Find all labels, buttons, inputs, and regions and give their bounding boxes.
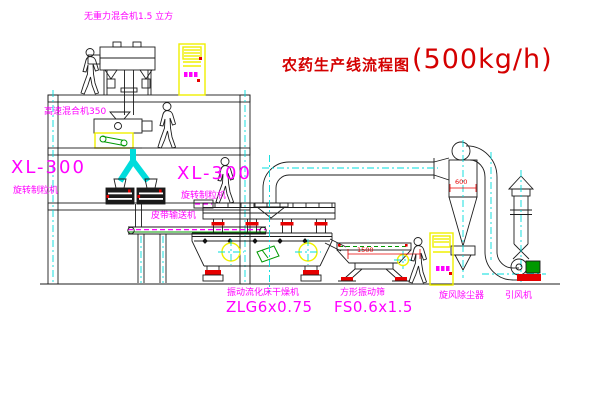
person-second-floor	[158, 103, 176, 149]
diagram-title: 农药生产线流程图 (500kg/h)	[282, 44, 553, 75]
label-gravity-mixer: 无重力混合机1.5 立方	[84, 13, 173, 22]
fluid-bed-dryer-machine	[192, 203, 346, 281]
control-cabinet-upper	[179, 44, 205, 95]
label-granulator-left-model: XL-300	[11, 159, 86, 177]
rotary-granulator-right	[137, 179, 165, 204]
process-flow-diagram: 600	[0, 0, 600, 403]
y-chute	[120, 149, 148, 181]
cyclone-diameter-dim: 600	[455, 178, 467, 186]
title-capacity: (500kg/h)	[412, 44, 553, 75]
sieve-length-dim: 1500	[357, 246, 374, 254]
granulator-discharge-pipe	[136, 204, 142, 227]
label-high-speed-mixer: 高速混合机350	[44, 108, 106, 117]
title-chinese: 农药生产线流程图	[282, 54, 410, 75]
label-granulator-right-model: XL-300	[177, 165, 252, 183]
label-belt-conveyor: 皮带输送机	[151, 212, 196, 221]
high-speed-mixer-machine	[94, 112, 152, 148]
label-granulator-left-name: 旋转制粒机	[13, 187, 58, 196]
control-cabinet-lower	[430, 233, 453, 285]
label-cyclone: 旋风除尘器	[439, 292, 484, 301]
label-sieve-model: FS0.6x1.5	[334, 300, 413, 315]
label-dryer-model: ZLG6x0.75	[226, 300, 313, 315]
label-granulator-right-name: 旋转制粒机	[181, 192, 226, 201]
induced-draft-fan-machine	[511, 259, 541, 281]
person-ground	[409, 238, 427, 284]
fan-suction-duct	[466, 146, 546, 280]
label-dryer-name: 振动流化床干燥机	[227, 289, 299, 298]
label-fan: 引风机	[505, 292, 532, 301]
rotary-granulator-left	[106, 179, 134, 204]
gravity-mixer-machine	[88, 42, 155, 115]
label-sieve-name: 方形振动筛	[340, 289, 385, 298]
vibrating-sieve-machine: 1500	[337, 243, 420, 281]
